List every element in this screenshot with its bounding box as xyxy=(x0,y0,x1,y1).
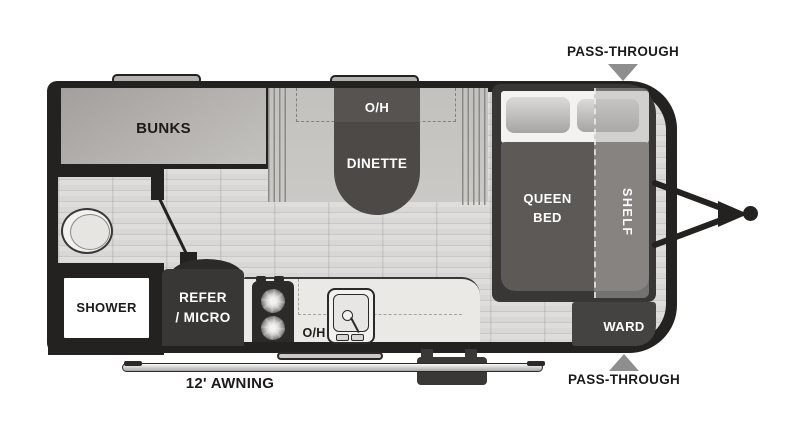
entry-grab-rail xyxy=(277,352,383,360)
awning-rail-cap xyxy=(124,361,142,366)
refer-micro-label: REFER / MICRO xyxy=(175,288,230,327)
refrigerator-microwave: REFER / MICRO xyxy=(162,269,244,346)
shower-label: SHOWER xyxy=(76,300,136,316)
awning-label: 12' AWNING xyxy=(140,375,320,393)
queen-bed-label: QUEEN BED xyxy=(501,190,594,228)
bathroom-wall xyxy=(56,167,164,177)
kitchen-overhead-label: O/H xyxy=(296,326,332,341)
sink-drain xyxy=(351,334,364,341)
floorplan-stage: BUNKS O/H DINETTE QUEEN BED SHELF WARD S… xyxy=(0,0,800,446)
bathroom-wall-stub xyxy=(151,167,164,200)
hitch-ball xyxy=(743,206,758,221)
dinette-overhead-label: O/H xyxy=(334,100,420,116)
awning-rail-icon xyxy=(122,363,543,372)
kitchen-overhead-outline xyxy=(298,279,462,315)
stove-burner-icon xyxy=(261,289,285,313)
pillow xyxy=(506,97,570,133)
toilet-bowl xyxy=(70,214,110,250)
pass-through-arrow-icon xyxy=(609,354,639,371)
pass-through-top-label: PASS-THROUGH xyxy=(543,44,703,60)
sink-drain xyxy=(336,334,349,341)
dinette-label: DINETTE xyxy=(334,156,420,172)
dinette-seatback-right xyxy=(462,88,488,205)
pass-through-bottom-label: PASS-THROUGH xyxy=(544,372,704,388)
stove-burner-icon xyxy=(261,316,285,340)
shower: SHOWER xyxy=(62,276,151,340)
shelf-label: SHELF xyxy=(608,172,634,252)
dinette-seatback-left xyxy=(268,88,288,202)
awning-rail-cap xyxy=(527,361,545,366)
pass-through-arrow-icon xyxy=(608,64,638,81)
ward-label: WARD xyxy=(598,319,650,335)
bunks-label: BUNKS xyxy=(61,120,266,138)
